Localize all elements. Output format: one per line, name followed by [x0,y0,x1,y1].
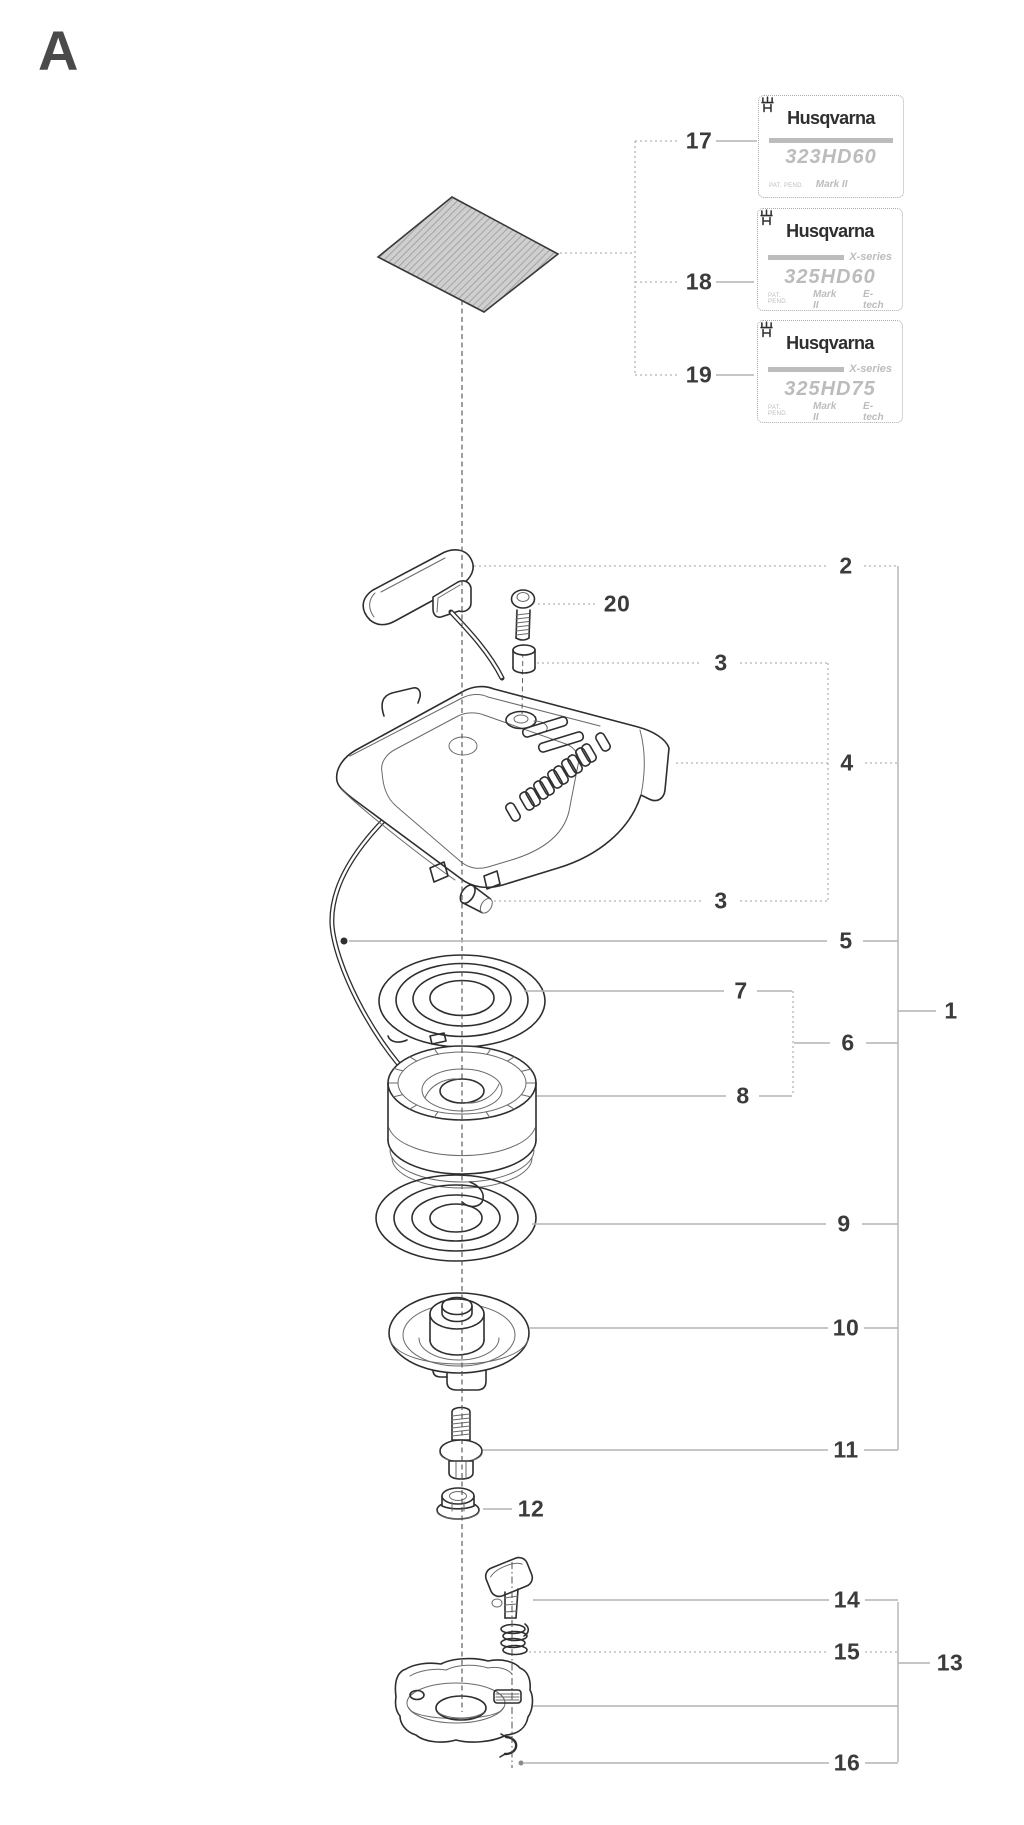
callout-1: 1 [944,998,957,1025]
pawl-spring [501,1624,528,1655]
decal-label-325hd75: Husqvarna X-series 325HD75 PAT. PEND. Ma… [757,320,903,423]
callout-14: 14 [834,1587,861,1614]
flange-nut [437,1488,479,1519]
decal-label-325hd60: Husqvarna X-series 325HD60 PAT. PEND. Ma… [757,208,903,311]
callout-9: 9 [837,1211,850,1238]
starter-pawl [483,1555,535,1618]
brand-name: Husqvarna [786,333,874,354]
decal-label-323hd60: Husqvarna 323HD60 PAT. PEND. Mark II [758,95,904,198]
starter-handle [363,550,502,678]
callout-7: 7 [734,978,747,1005]
callout-17: 17 [686,128,713,155]
series-text: X-series [849,363,892,375]
callout-19: 19 [686,362,713,389]
spring-cassette [389,1293,529,1390]
husqvarna-crown-icon [758,321,775,338]
model-number: 325HD60 [768,266,892,289]
callout-16: 16 [834,1750,861,1777]
callout-15: 15 [834,1639,861,1666]
callout-6: 6 [841,1030,854,1057]
parts-diagram-page: A 17181922034357168910111214151316 Husqv… [0,0,1024,1825]
brand-row: Husqvarna [768,221,892,242]
pat-pend-text: PAT. PEND. [769,183,804,189]
series-text: X-series [849,251,892,263]
callout-5: 5 [839,928,852,955]
callout-10: 10 [833,1315,860,1342]
model-number: 325HD75 [768,378,892,401]
callout-3: 3 [714,650,727,677]
decal-blank [378,197,558,312]
brand-name: Husqvarna [786,221,874,242]
husqvarna-crown-icon [758,209,775,226]
model-number: 323HD60 [769,146,893,169]
center-screw [440,1408,482,1480]
mark-text: Mark II [813,401,843,423]
brand-name: Husqvarna [787,108,875,129]
callout-12: 12 [518,1496,545,1523]
starter-cup [395,1659,532,1742]
callout-3: 3 [714,888,727,915]
callout-11: 11 [833,1437,858,1464]
starter-housing [337,687,669,889]
callout-2: 2 [839,553,852,580]
pat-pend-text: PAT. PEND. [768,293,801,305]
callout-4: 4 [840,750,853,777]
spacer-sleeve [513,645,535,673]
husqvarna-crown-icon [759,96,776,113]
mark-text: Mark II [816,179,848,190]
mark-text: Mark II [813,289,843,311]
decal-bar [768,255,844,260]
brand-row: Husqvarna [768,333,892,354]
decal-bar [768,367,844,372]
callout-13: 13 [937,1650,964,1677]
decal-bar [769,138,893,143]
pat-pend-text: PAT. PEND. [768,405,801,417]
brand-row: Husqvarna [769,108,893,129]
etech-text: E-tech [863,289,892,311]
etech-text: E-tech [863,401,892,423]
callout-8: 8 [736,1083,749,1110]
page-section-letter: A [38,18,78,83]
callout-20: 20 [604,591,631,618]
callout-18: 18 [686,269,713,296]
